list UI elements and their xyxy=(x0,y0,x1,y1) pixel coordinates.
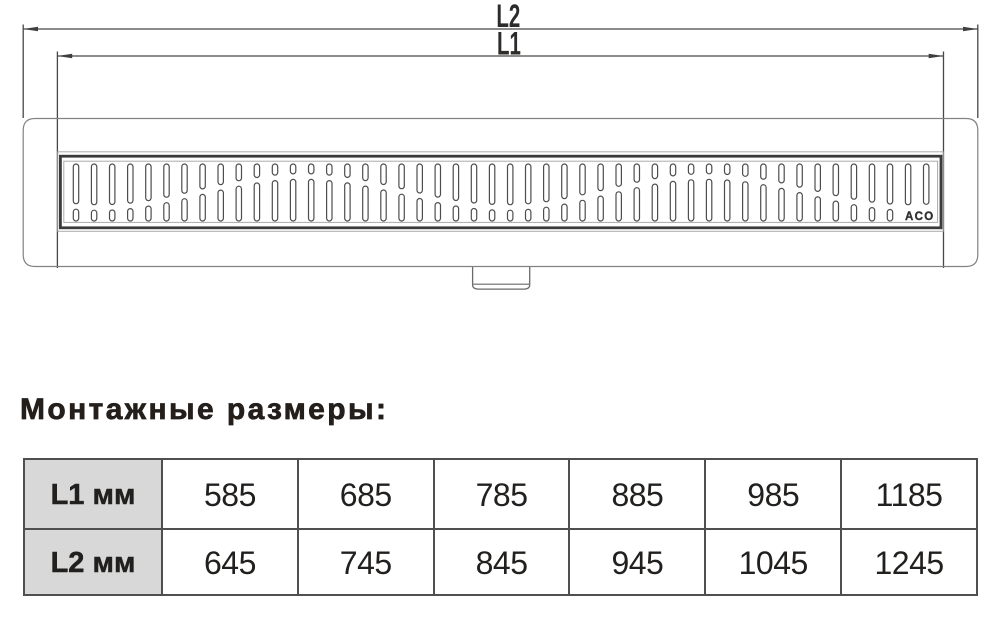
svg-text:ACO: ACO xyxy=(905,211,934,223)
svg-text:L1: L1 xyxy=(497,26,521,62)
